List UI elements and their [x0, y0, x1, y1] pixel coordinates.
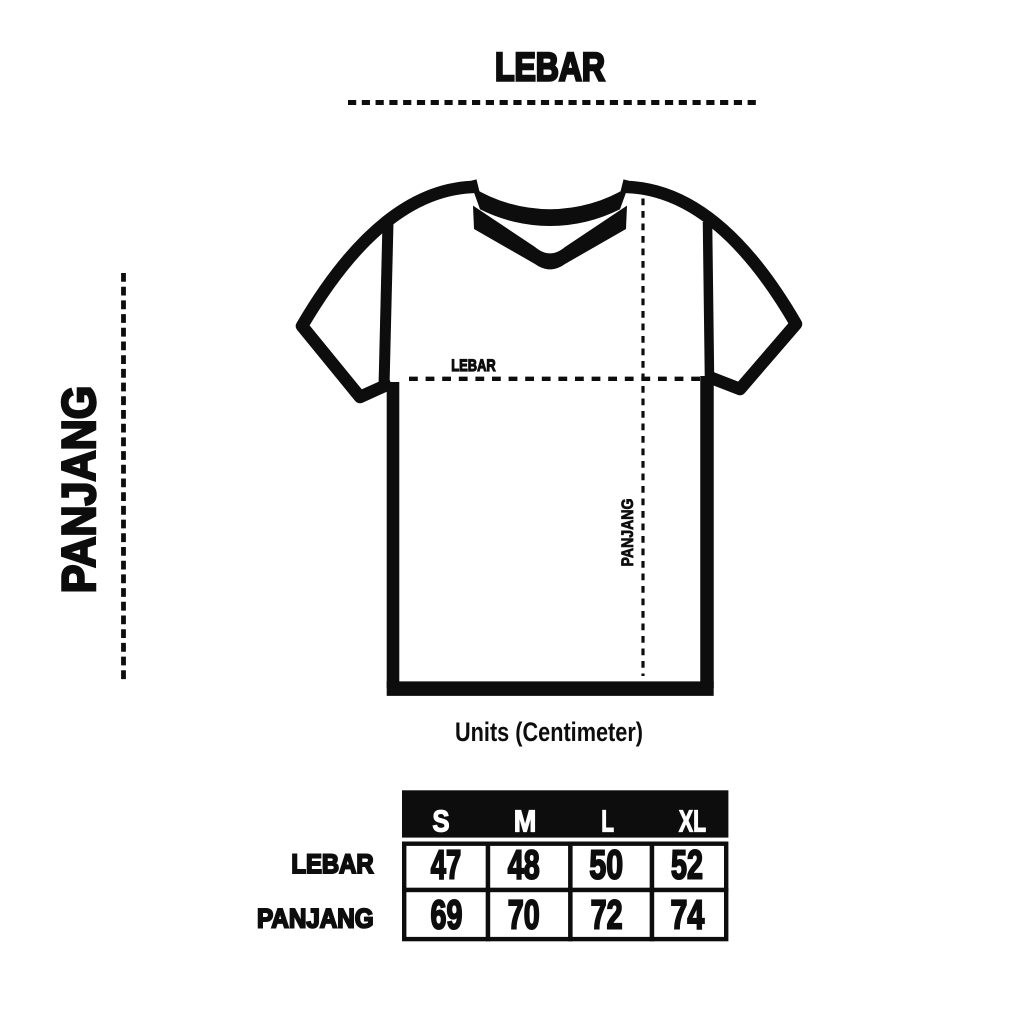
svg-text:LEBAR: LEBAR: [291, 848, 374, 879]
svg-text:48: 48: [508, 842, 540, 888]
svg-text:LEBAR: LEBAR: [495, 46, 605, 90]
svg-text:PANJANG: PANJANG: [257, 903, 374, 934]
svg-text:52: 52: [671, 842, 703, 888]
svg-text:XL: XL: [679, 803, 706, 838]
svg-text:47: 47: [431, 842, 461, 888]
svg-text:PANJANG: PANJANG: [52, 386, 105, 594]
svg-text:LEBAR: LEBAR: [451, 356, 496, 375]
svg-text:69: 69: [431, 892, 463, 938]
svg-text:PANJANG: PANJANG: [619, 499, 637, 567]
svg-text:74: 74: [671, 892, 705, 938]
svg-text:S: S: [432, 803, 449, 838]
svg-text:50: 50: [589, 842, 623, 888]
svg-text:L: L: [601, 803, 614, 838]
svg-text:M: M: [514, 803, 537, 838]
svg-text:70: 70: [508, 892, 540, 938]
svg-text:Units (Centimeter): Units (Centimeter): [455, 717, 643, 747]
svg-text:72: 72: [591, 892, 623, 938]
